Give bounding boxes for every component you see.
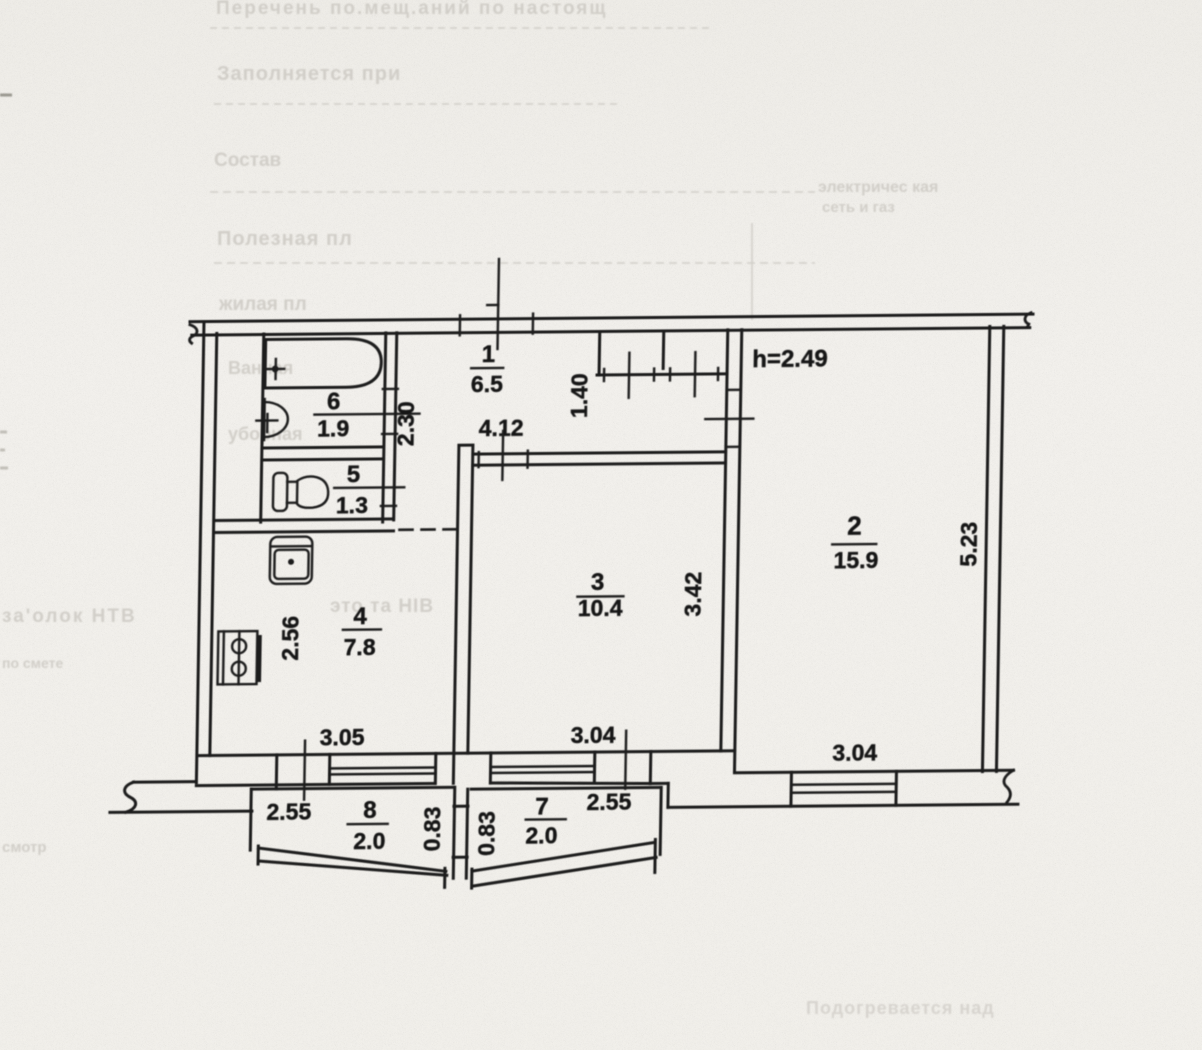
svg-text:это та НІВ: это та НІВ [330, 596, 434, 617]
svg-text:5: 5 [347, 461, 361, 488]
svg-text:5.23: 5.23 [955, 522, 982, 567]
svg-text:3.05: 3.05 [320, 724, 365, 750]
svg-text:Полезная пл: Полезная пл [217, 228, 353, 250]
svg-text:6.5: 6.5 [471, 371, 504, 397]
svg-text:2.56: 2.56 [277, 616, 304, 661]
svg-text:4.12: 4.12 [479, 415, 524, 441]
svg-text:2.55: 2.55 [266, 799, 311, 825]
svg-text:1.3: 1.3 [336, 492, 368, 518]
svg-text:8: 8 [363, 797, 377, 824]
svg-text:2: 2 [847, 511, 862, 541]
svg-text:1: 1 [482, 341, 496, 368]
svg-text:4: 4 [353, 603, 367, 630]
svg-text:1.9: 1.9 [317, 415, 349, 441]
svg-text:жилая пл: жилая пл [218, 294, 307, 315]
svg-text:3.04: 3.04 [571, 722, 616, 748]
svg-text:h=2.49: h=2.49 [752, 345, 828, 373]
svg-text:0.83: 0.83 [419, 806, 446, 851]
svg-text:3.42: 3.42 [680, 572, 707, 617]
svg-text:смотр: смотр [2, 839, 47, 856]
svg-text:0.83: 0.83 [473, 811, 500, 856]
svg-text:Заполняется при: Заполняется при [217, 63, 401, 85]
svg-text:1.40: 1.40 [566, 373, 593, 418]
svg-text:3: 3 [591, 569, 605, 596]
svg-text:сеть и газ: сеть и газ [822, 199, 895, 216]
svg-text:10.4: 10.4 [578, 595, 623, 621]
svg-text:2.55: 2.55 [586, 789, 631, 815]
svg-text:2.0: 2.0 [525, 822, 557, 848]
svg-text:6: 6 [327, 388, 341, 415]
svg-text:2.0: 2.0 [353, 828, 385, 854]
svg-text:Подогревается над: Подогревается над [806, 998, 995, 1018]
svg-text:Перечень по.мещ.аний по настоя: Перечень по.мещ.аний по настоящ [216, 0, 607, 19]
svg-text:электричес кая: электричес кая [818, 179, 938, 196]
svg-text:2.30: 2.30 [392, 401, 419, 446]
svg-text:за'олок НТВ: за'олок НТВ [2, 606, 137, 627]
svg-text:3.04: 3.04 [832, 739, 877, 765]
svg-text:15.9: 15.9 [833, 547, 878, 573]
svg-text:по смете: по смете [2, 655, 63, 671]
svg-text:7.8: 7.8 [343, 634, 376, 660]
svg-text:Состав: Состав [214, 150, 281, 171]
svg-text:7: 7 [535, 793, 549, 820]
